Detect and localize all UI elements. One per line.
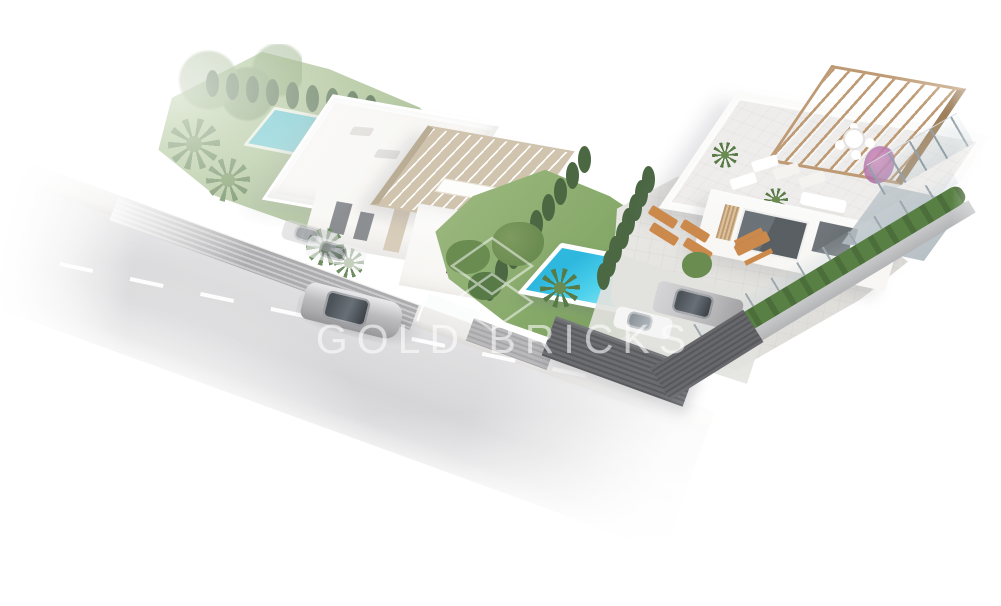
roof-furniture — [373, 149, 401, 159]
watermark-text: GOLD BRICKS — [316, 316, 695, 363]
terrace-potted-palm — [712, 142, 738, 168]
cypress-row-courtyard — [642, 166, 655, 193]
roof-furniture — [349, 126, 374, 136]
terrace-dining-set — [845, 130, 863, 148]
palm-tree — [206, 158, 250, 202]
pool-palm-tree — [540, 268, 580, 308]
window — [353, 212, 375, 241]
render-canvas: GOLD BRICKS — [0, 0, 1001, 606]
palm-tree — [168, 118, 220, 170]
wood-slat-door — [715, 204, 740, 241]
accent-wall — [383, 207, 411, 252]
cypress-row-central — [578, 146, 591, 173]
cypress-row-left — [206, 70, 219, 97]
